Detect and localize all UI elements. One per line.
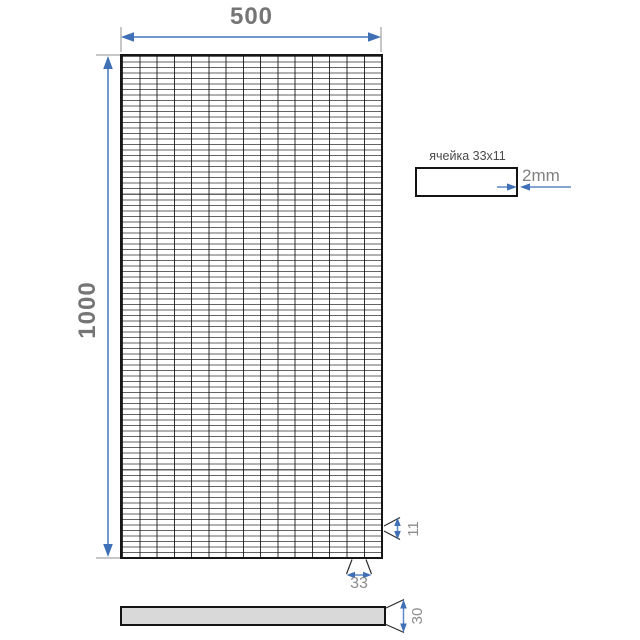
- arrow-up-icon: [394, 518, 401, 527]
- cell-width-label: 33: [339, 576, 379, 592]
- wire-diameter-label: 2mm: [522, 168, 574, 184]
- width-dimension-label: 500: [120, 3, 383, 31]
- mesh-side-view: [120, 606, 386, 626]
- drawing-canvas: 500 1000 ячейка 33x11 2mm 11 33 30: [0, 0, 640, 640]
- arrow-down-icon: [103, 544, 113, 557]
- cell-detail-box: [415, 167, 518, 197]
- arrow-left-icon: [121, 32, 134, 42]
- height-dimension-label: 1000: [74, 260, 102, 360]
- arrow-down-icon: [394, 531, 401, 540]
- arrow-down-icon: [400, 624, 407, 633]
- cell-height-callout: [384, 518, 401, 540]
- thickness-label: 30: [410, 601, 426, 631]
- cell-height-label: 11: [406, 514, 422, 544]
- arrow-up-icon: [400, 600, 407, 609]
- arrow-up-icon: [103, 56, 113, 69]
- arrow-right-icon: [368, 32, 381, 42]
- cell-detail-label: ячейка 33x11: [405, 149, 530, 163]
- thickness-callout: [386, 600, 407, 633]
- mesh-front-view: [120, 54, 383, 559]
